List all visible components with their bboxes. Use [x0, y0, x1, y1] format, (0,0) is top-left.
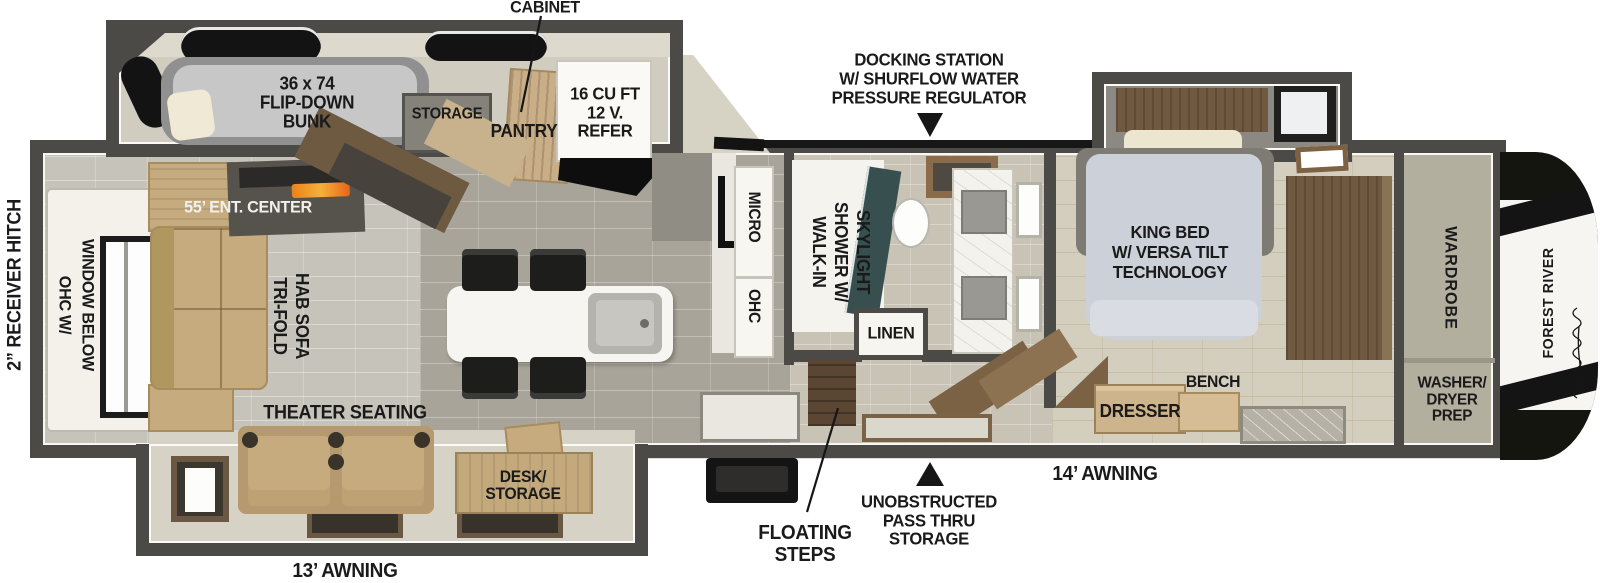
stool-4 — [530, 357, 586, 399]
king-bed-line-2: W/ VERSA TILT — [1112, 242, 1228, 262]
docking-line-1: DOCKING STATION — [832, 51, 1027, 70]
receiver-hitch-label: 2” RECEIVER HITCH — [6, 199, 27, 371]
cupholder-2 — [328, 432, 344, 448]
vanity-sink-1 — [961, 190, 1007, 234]
stool-2 — [530, 249, 586, 291]
floating-steps-label: FLOATING STEPS — [758, 522, 851, 566]
bedroom-gray-hatch — [1240, 406, 1346, 444]
signature-squiggle — [1568, 296, 1584, 400]
refer-label: 16 CU FT 12 V. REFER — [570, 84, 640, 140]
window-sash — [124, 242, 128, 412]
bunk-window-2 — [425, 31, 547, 61]
fs-line-2: STEPS — [758, 544, 851, 566]
ohc-label: OHC — [745, 289, 763, 323]
theater-seating-label: THEATER SEATING — [263, 404, 427, 425]
floor-hatch — [862, 414, 992, 442]
docking-line-2: W/ SHURFLOW WATER — [832, 70, 1027, 89]
awning-14-label: 14’ AWNING — [1052, 463, 1157, 485]
faucet — [640, 319, 649, 328]
slide-window-left — [171, 456, 229, 522]
ent-center-label: 55’ ENT. CENTER — [184, 199, 312, 218]
stool-1 — [462, 249, 518, 291]
entry-step — [706, 458, 798, 503]
wd-line-2: DRYER — [1418, 392, 1487, 409]
endcap-window-slit — [714, 137, 765, 152]
toilet — [892, 198, 930, 248]
cabinet-label: CABINET — [510, 0, 580, 17]
king-bed-line-1: KING BED — [1112, 222, 1228, 242]
entry-step-tread — [716, 466, 788, 492]
seat-left — [248, 436, 330, 506]
pantry-label: PANTRY — [491, 122, 558, 142]
refer-line-2: 12 V. — [570, 103, 640, 122]
island-sink — [588, 293, 662, 354]
bunk-line-3: BUNK — [260, 113, 354, 132]
bath-window-1 — [1016, 182, 1042, 238]
headboard — [1116, 88, 1268, 132]
bath-window-2 — [1016, 276, 1042, 332]
refer-line-1: 16 CU FT — [570, 84, 640, 103]
counter-gray — [652, 153, 714, 241]
sofa-label-1: TRI-FOLD — [269, 277, 289, 355]
vanity-sink-2 — [961, 276, 1007, 320]
seat-right — [342, 436, 424, 506]
stool-3 — [462, 357, 518, 399]
cupholder-3 — [328, 454, 344, 470]
king-bed-line-3: TECHNOLOGY — [1112, 262, 1228, 282]
wardrobe-divider — [1404, 358, 1495, 363]
cabinet-divider — [736, 276, 772, 279]
refer-line-3: REFER — [570, 121, 640, 140]
pass-thru-label: UNOBSTRUCTED PASS THRU STORAGE — [861, 492, 997, 548]
cupholder-1 — [242, 432, 258, 448]
desk-line-2: STORAGE — [485, 486, 560, 503]
ohc-window-label-2: WINDOW BELOW — [78, 239, 97, 371]
passthru-pointer-icon — [916, 462, 944, 486]
bedroom-slide-window — [1274, 86, 1336, 142]
docking-pointer-icon — [917, 113, 943, 137]
bunk-line-1: 36 x 74 — [260, 75, 354, 94]
brand-logo: FOREST RIVER — [1541, 247, 1558, 358]
entry-landing — [700, 392, 800, 442]
pt-line-2: PASS THRU — [861, 511, 997, 530]
bunk-pillow — [166, 88, 216, 142]
micro-bracket — [718, 176, 734, 248]
wd-line-1: WASHER/ — [1418, 375, 1487, 392]
window-pane — [1281, 92, 1327, 134]
fireplace — [292, 182, 350, 198]
floating-steps — [808, 360, 856, 426]
desk-storage-label: DESK/ STORAGE — [485, 469, 560, 503]
bedroom-closet — [1286, 176, 1392, 360]
desk-line-1: DESK/ — [485, 469, 560, 486]
cupholder-4 — [414, 432, 430, 448]
tri-fold-sofa — [150, 226, 268, 390]
storage-label: STORAGE — [412, 105, 483, 122]
linen-label: LINEN — [867, 325, 914, 344]
window-pane — [185, 468, 215, 512]
docking-station-label: DOCKING STATION W/ SHURFLOW WATER PRESSU… — [832, 51, 1027, 108]
bunk-line-2: FLIP-DOWN — [260, 94, 354, 113]
sofa-label-2: HAB SOFA — [291, 273, 311, 359]
awning-13-label: 13’ AWNING — [292, 560, 397, 582]
fs-line-1: FLOATING — [758, 522, 851, 544]
micro-label: MICRO — [745, 192, 763, 243]
bunk-label: 36 x 74 FLIP-DOWN BUNK — [260, 75, 354, 132]
bed-foot — [1090, 300, 1258, 336]
bench — [1178, 392, 1240, 432]
wardrobe-wall — [1394, 153, 1404, 445]
ohc-window-label-1: OHC W/ — [55, 276, 74, 334]
washer-dryer-label: WASHER/ DRYER PREP — [1418, 375, 1487, 425]
bench-label: BENCH — [1186, 373, 1240, 391]
bedroom-window-top — [1295, 145, 1348, 174]
wardrobe-label: WARDROBE — [1441, 226, 1460, 330]
shower-label-3: SKYLIGHT — [852, 210, 872, 294]
vanity — [952, 168, 1014, 354]
floorplan: FOREST RIVER CABINET DOCKING STATION W/ … — [0, 0, 1600, 583]
pt-line-1: UNOBSTRUCTED — [861, 492, 997, 511]
shower-label-2: SHOWER W/ — [830, 202, 850, 302]
theater-seats — [238, 426, 434, 514]
sofa-cabinet-bottom — [148, 384, 234, 432]
pt-line-3: STORAGE — [861, 529, 997, 548]
docking-line-3: PRESSURE REGULATOR — [832, 89, 1027, 108]
king-bed-label: KING BED W/ VERSA TILT TECHNOLOGY — [1112, 222, 1228, 282]
dresser-label: DRESSER — [1100, 402, 1181, 422]
wd-line-3: PREP — [1418, 408, 1487, 425]
shower-label-1: WALK-IN — [808, 216, 828, 287]
